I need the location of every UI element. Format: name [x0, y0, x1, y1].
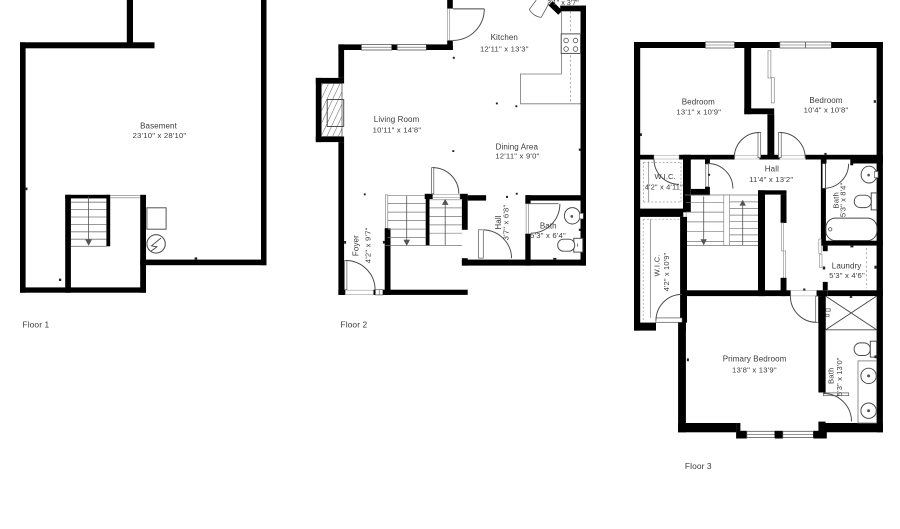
svg-text:5'3" x 4'6": 5'3" x 4'6" [829, 271, 865, 280]
svg-text:Laundry: Laundry [832, 262, 862, 271]
svg-text:13'1" x 10'9": 13'1" x 10'9" [676, 108, 721, 117]
svg-text:Basement: Basement [140, 122, 177, 131]
svg-text:Kitchen: Kitchen [491, 33, 518, 42]
svg-text:4'2" x 10'9": 4'2" x 10'9" [662, 252, 671, 291]
svg-text:Floor 2: Floor 2 [341, 320, 368, 330]
svg-text:5'3" x 8'4": 5'3" x 8'4" [838, 182, 847, 217]
svg-text:Primary Bedroom: Primary Bedroom [723, 354, 787, 363]
svg-text:W.I.C.: W.I.C. [655, 172, 676, 181]
svg-text:23'10" x 28'10": 23'10" x 28'10" [133, 131, 187, 140]
svg-text:13'8" x 13'9": 13'8" x 13'9" [732, 366, 777, 375]
svg-text:Living Room: Living Room [374, 115, 420, 124]
svg-text:Bedroom: Bedroom [809, 96, 842, 105]
svg-text:Bath: Bath [540, 222, 557, 231]
svg-text:10'4" x 10'8": 10'4" x 10'8" [804, 106, 849, 115]
svg-text:Dining Area: Dining Area [496, 142, 539, 151]
svg-text:4'2" x 4'11": 4'2" x 4'11" [645, 183, 683, 192]
svg-text:Floor 1: Floor 1 [23, 320, 50, 330]
svg-text:5'3" x 13'0": 5'3" x 13'0" [835, 357, 844, 396]
svg-text:3'7" x 6'8": 3'7" x 6'8" [501, 205, 510, 241]
svg-text:10'11" x 14'8": 10'11" x 14'8" [373, 126, 422, 135]
svg-text:W.I.C.: W.I.C. [653, 254, 662, 276]
svg-text:11'4" x 13'2": 11'4" x 13'2" [749, 175, 793, 184]
svg-text:12'11" x 9'0": 12'11" x 9'0" [495, 152, 539, 161]
svg-text:3'1" x 3'7": 3'1" x 3'7" [547, 0, 579, 7]
svg-text:4'2" x 9'7": 4'2" x 9'7" [363, 227, 372, 263]
svg-text:5'3" x 6'4": 5'3" x 6'4" [530, 231, 566, 240]
svg-text:Hall: Hall [765, 164, 779, 173]
svg-text:Foyer: Foyer [351, 235, 360, 256]
svg-text:Floor 3: Floor 3 [685, 461, 712, 471]
svg-text:Bedroom: Bedroom [682, 97, 715, 106]
svg-text:12'11" x 13'3": 12'11" x 13'3" [480, 45, 529, 54]
